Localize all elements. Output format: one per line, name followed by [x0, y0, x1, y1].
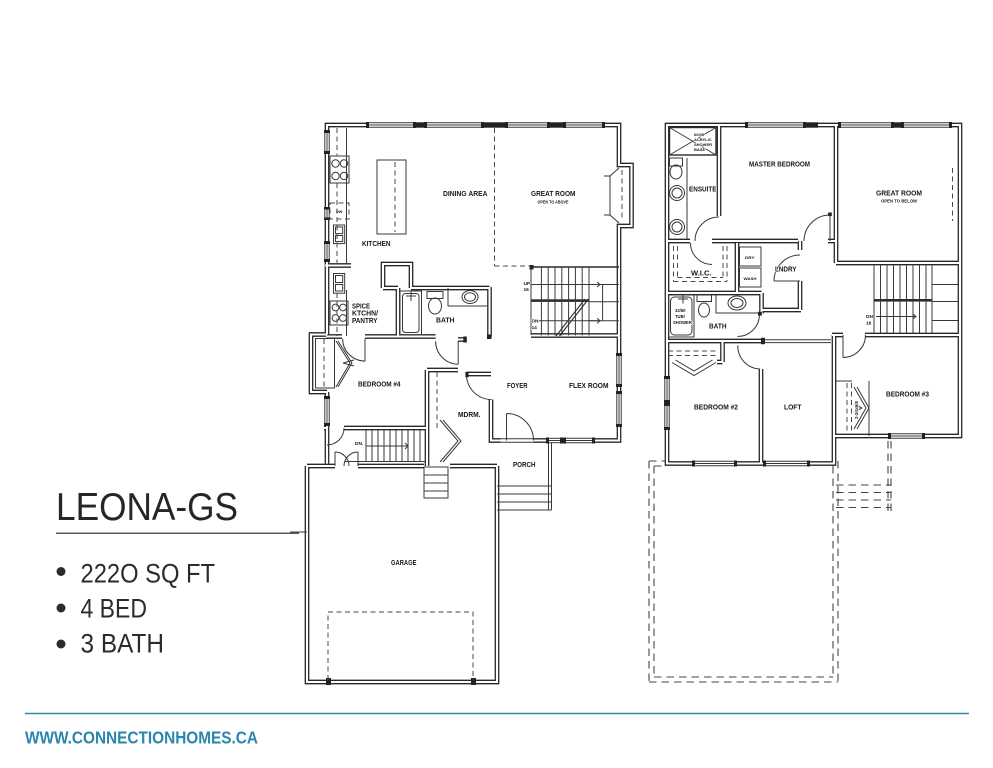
svg-text:DN: DN: [866, 314, 873, 320]
svg-text:BEDROOM #2: BEDROOM #2: [694, 403, 738, 412]
svg-text:OPEN TO BELOW: OPEN TO BELOW: [881, 199, 918, 204]
svg-text:SPICE: SPICE: [352, 304, 370, 311]
svg-text:4 BED: 4 BED: [81, 594, 148, 624]
svg-text:GARAGE: GARAGE: [391, 558, 417, 567]
svg-text:BEDROOM #4: BEDROOM #4: [358, 380, 401, 389]
svg-text:UP: UP: [524, 281, 531, 287]
svg-text:LNDRY: LNDRY: [775, 265, 797, 274]
svg-text:BASE: BASE: [694, 147, 705, 152]
svg-text:BATH: BATH: [436, 316, 455, 325]
svg-text:TUB/: TUB/: [675, 314, 686, 319]
svg-text:MASTER BEDROOM: MASTER BEDROOM: [749, 160, 810, 169]
svg-text:W.I.C.: W.I.C.: [691, 269, 712, 278]
svg-text:14: 14: [532, 325, 538, 331]
svg-text:16: 16: [524, 287, 530, 293]
svg-text:LOFT: LOFT: [784, 403, 802, 412]
svg-text:DN: DN: [532, 319, 539, 325]
svg-text:3 BATH: 3 BATH: [81, 629, 165, 659]
svg-text:222O SQ FT: 222O SQ FT: [81, 559, 216, 589]
svg-text:GREAT ROOM: GREAT ROOM: [531, 189, 576, 198]
svg-text:32/60: 32/60: [675, 308, 686, 313]
svg-text:BATH: BATH: [709, 322, 727, 331]
svg-text:FLEX ROOM: FLEX ROOM: [569, 381, 609, 390]
svg-text:FOYER: FOYER: [507, 381, 528, 390]
svg-text:2-2/4x6/8: 2-2/4x6/8: [854, 400, 859, 418]
svg-text:LEONA-GS: LEONA-GS: [56, 486, 238, 529]
svg-text:PORCH: PORCH: [513, 460, 536, 469]
svg-text:DRY: DRY: [745, 255, 755, 260]
svg-text:MDRM.: MDRM.: [458, 410, 481, 419]
svg-text:ENSUITE: ENSUITE: [689, 187, 717, 194]
svg-text:KTCHN/: KTCHN/: [352, 311, 378, 318]
svg-text:BEDROOM #3: BEDROOM #3: [886, 390, 929, 399]
svg-text:DN.: DN.: [355, 441, 363, 447]
svg-text:SHOWER: SHOWER: [673, 320, 692, 325]
svg-text:WASH: WASH: [744, 276, 757, 281]
svg-text:GREAT ROOM: GREAT ROOM: [876, 189, 922, 198]
svg-text:PANTRY: PANTRY: [352, 318, 378, 325]
svg-text:OPEN TO ABOVE: OPEN TO ABOVE: [538, 200, 569, 205]
svg-text:DINING AREA: DINING AREA: [443, 189, 488, 198]
svg-text:KITCHEN: KITCHEN: [362, 239, 391, 248]
svg-text:WWW.CONNECTIONHOMES.CA: WWW.CONNECTIONHOMES.CA: [25, 728, 258, 748]
svg-text:16: 16: [866, 321, 872, 327]
